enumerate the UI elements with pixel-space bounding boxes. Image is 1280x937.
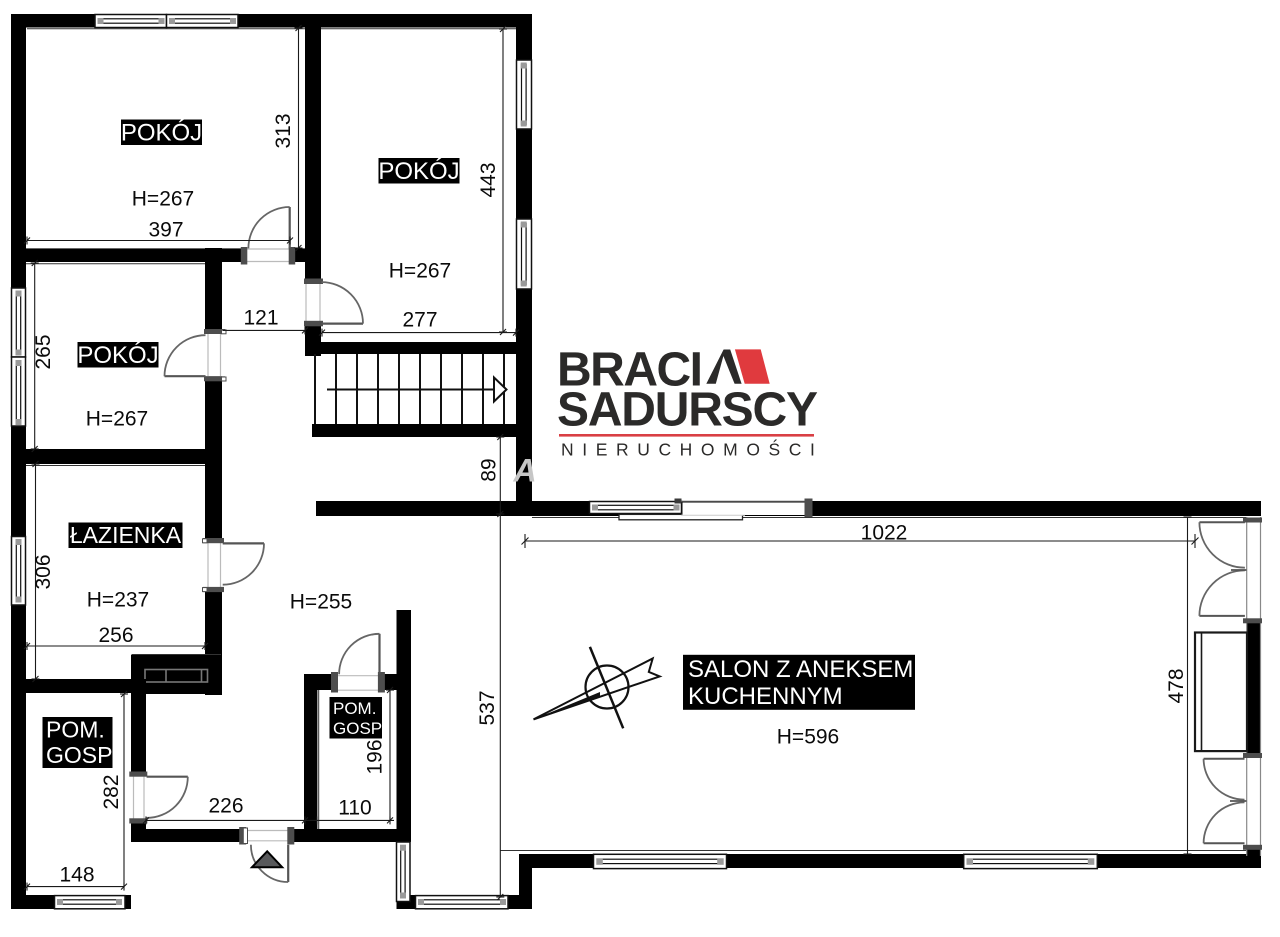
svg-text:H=255: H=255 [290, 591, 352, 614]
svg-text:POKÓJ: POKÓJ [121, 120, 202, 147]
svg-text:226: 226 [208, 795, 243, 818]
svg-text:110: 110 [338, 797, 371, 820]
svg-text:196: 196 [364, 739, 387, 774]
svg-text:POKÓJ: POKÓJ [77, 342, 158, 369]
svg-text:148: 148 [59, 864, 94, 887]
svg-text:GOSP: GOSP [46, 742, 112, 768]
svg-text:A: A [513, 453, 537, 489]
svg-text:478: 478 [1165, 668, 1188, 703]
svg-text:313: 313 [272, 113, 295, 148]
svg-text:256: 256 [98, 624, 133, 647]
svg-text:KUCHENNYM: KUCHENNYM [688, 683, 843, 710]
svg-text:H=596: H=596 [777, 726, 839, 749]
svg-text:GOSP: GOSP [333, 719, 382, 738]
svg-text:89: 89 [478, 458, 501, 481]
svg-text:121: 121 [243, 307, 278, 330]
svg-text:H=267: H=267 [132, 188, 194, 211]
svg-text:1022: 1022 [861, 522, 908, 545]
svg-text:277: 277 [402, 309, 437, 332]
svg-text:H=237: H=237 [87, 589, 149, 612]
svg-text:397: 397 [148, 219, 183, 242]
svg-text:443: 443 [477, 162, 500, 197]
svg-text:H=267: H=267 [389, 260, 451, 283]
svg-text:282: 282 [100, 774, 123, 809]
svg-text:ŁAZIENKA: ŁAZIENKA [70, 522, 182, 548]
svg-text:SADURSCY: SADURSCY [557, 384, 818, 437]
svg-text:POKÓJ: POKÓJ [378, 158, 459, 185]
svg-text:265: 265 [32, 334, 55, 369]
svg-text:H=267: H=267 [86, 408, 148, 431]
svg-text:306: 306 [32, 554, 55, 589]
svg-text:POM.: POM. [333, 699, 376, 718]
svg-text:537: 537 [476, 690, 499, 725]
svg-text:SALON Z ANEKSEM: SALON Z ANEKSEM [688, 656, 913, 683]
svg-text:NIERUCHOMOŚCI: NIERUCHOMOŚCI [561, 439, 824, 460]
svg-text:POM.: POM. [46, 717, 105, 743]
